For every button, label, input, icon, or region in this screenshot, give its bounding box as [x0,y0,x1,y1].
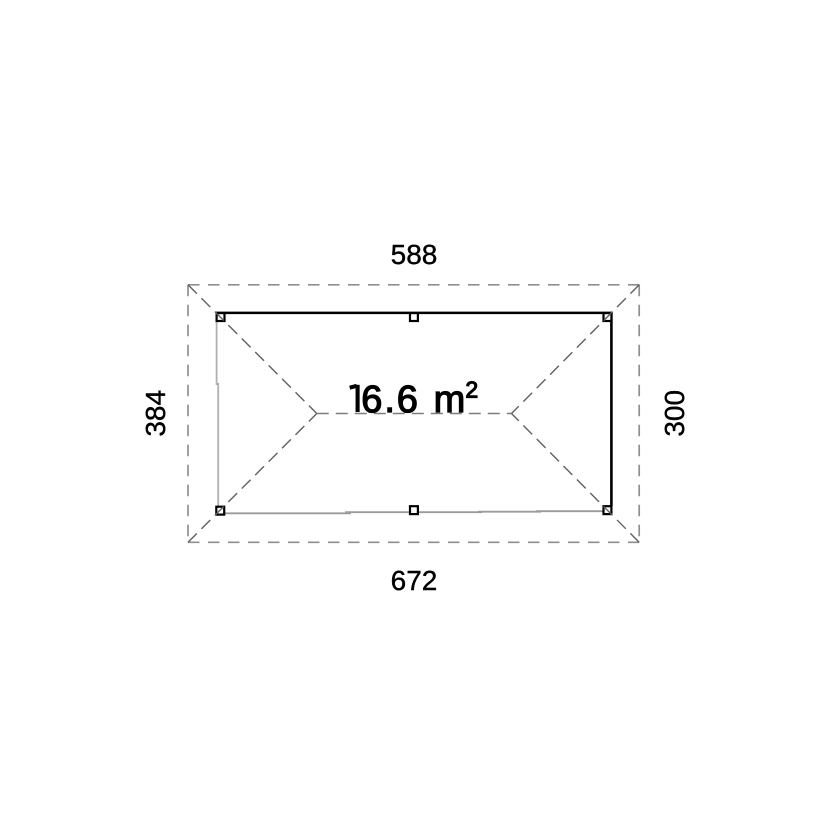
svg-text:384: 384 [140,390,171,437]
svg-text:m: m [434,379,466,421]
svg-text:672: 672 [391,565,438,596]
svg-text:2: 2 [465,376,478,402]
svg-text:6.6: 6.6 [361,379,420,421]
svg-text:588: 588 [391,239,438,270]
svg-text:300: 300 [659,390,690,437]
